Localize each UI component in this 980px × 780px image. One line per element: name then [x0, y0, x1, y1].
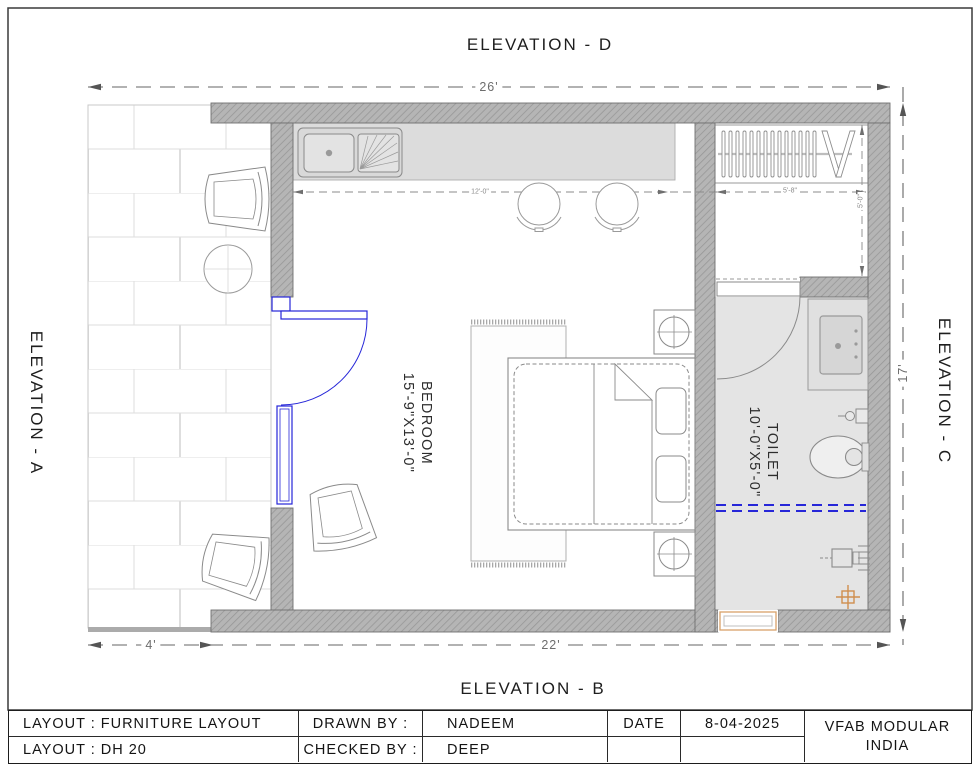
dim-counter-run: 12'-0": [469, 189, 491, 196]
pillow-icon: [656, 388, 686, 434]
date-label: DATE: [608, 711, 681, 737]
wall-bottom-right: [778, 610, 890, 632]
floor-plan-sheet: { "drawing": { "elevation_top": "ELEVATI…: [0, 0, 980, 780]
bedroom-size: 15'-9"X13'-0": [399, 373, 417, 473]
wall-bottom-left: [211, 610, 718, 632]
nightstand-icon: [654, 532, 695, 576]
layout-name-cell: LAYOUT : FURNITURE LAYOUT: [9, 711, 299, 737]
washbasin-icon: [808, 299, 868, 390]
date-label-empty-cell: [608, 737, 681, 762]
dim-overall-height: 17': [896, 359, 910, 386]
wall-top: [211, 103, 890, 123]
date-value-empty-cell: [681, 737, 805, 762]
date-value: 8-04-2025: [681, 711, 805, 737]
dim-room-width: 22': [537, 638, 564, 652]
dim-balcony-width: 4': [141, 638, 160, 652]
bed-icon: [508, 358, 695, 530]
bar-stool-icon: [517, 183, 561, 232]
entry-door-icon: [272, 297, 367, 504]
bar-stools: [517, 183, 639, 232]
round-table-icon: [204, 245, 252, 293]
toilet-size: 10'-0"X5'-0": [745, 406, 763, 497]
layout-code-cell: LAYOUT : DH 20: [9, 737, 299, 762]
floor-plan-svg: [0, 0, 980, 780]
kitchenette-counter: [293, 123, 675, 180]
company-cell: VFAB MODULAR INDIA: [805, 711, 970, 762]
checked-by-value: DEEP: [423, 737, 608, 762]
elevation-a-label: ELEVATION - A: [26, 331, 46, 475]
toilet-label: TOILET 10'-0"X5'-0": [745, 406, 781, 497]
company-name-line1: VFAB MODULAR: [825, 718, 951, 737]
balcony-chair-icon: [205, 167, 269, 231]
nightstand-icon: [654, 310, 695, 354]
pillow-icon: [656, 456, 686, 502]
wall-right: [868, 123, 890, 632]
dim-wardrobe-depth: 5'-0": [858, 192, 865, 210]
elevation-d-label: ELEVATION - D: [467, 35, 613, 55]
wall-left-upper: [271, 123, 293, 297]
sink-icon: [298, 128, 402, 177]
drawn-by-value: NADEEM: [423, 711, 608, 737]
bar-stool-icon: [595, 183, 639, 232]
wall-partition: [695, 123, 715, 632]
elevation-c-label: ELEVATION - C: [934, 318, 954, 464]
drawn-by-label: DRAWN BY :: [299, 711, 423, 737]
company-name-line2: INDIA: [866, 737, 910, 756]
window-icon: [718, 610, 778, 632]
wall-toilet-top: [800, 277, 868, 297]
bedroom-chair-icon: [301, 479, 377, 555]
bedroom-name: BEDROOM: [417, 373, 435, 473]
bedroom-label: BEDROOM 15'-9"X13'-0": [399, 373, 435, 473]
elevation-b-label: ELEVATION - B: [460, 679, 605, 699]
checked-by-label: CHECKED BY :: [299, 737, 423, 762]
dim-wardrobe-width: 5'-8": [781, 188, 799, 195]
dim-overall-width: 26': [475, 80, 502, 94]
title-block: LAYOUT : FURNITURE LAYOUT DRAWN BY : NAD…: [8, 710, 972, 764]
toilet-name: TOILET: [763, 406, 781, 497]
wardrobe-icon: [715, 125, 868, 183]
